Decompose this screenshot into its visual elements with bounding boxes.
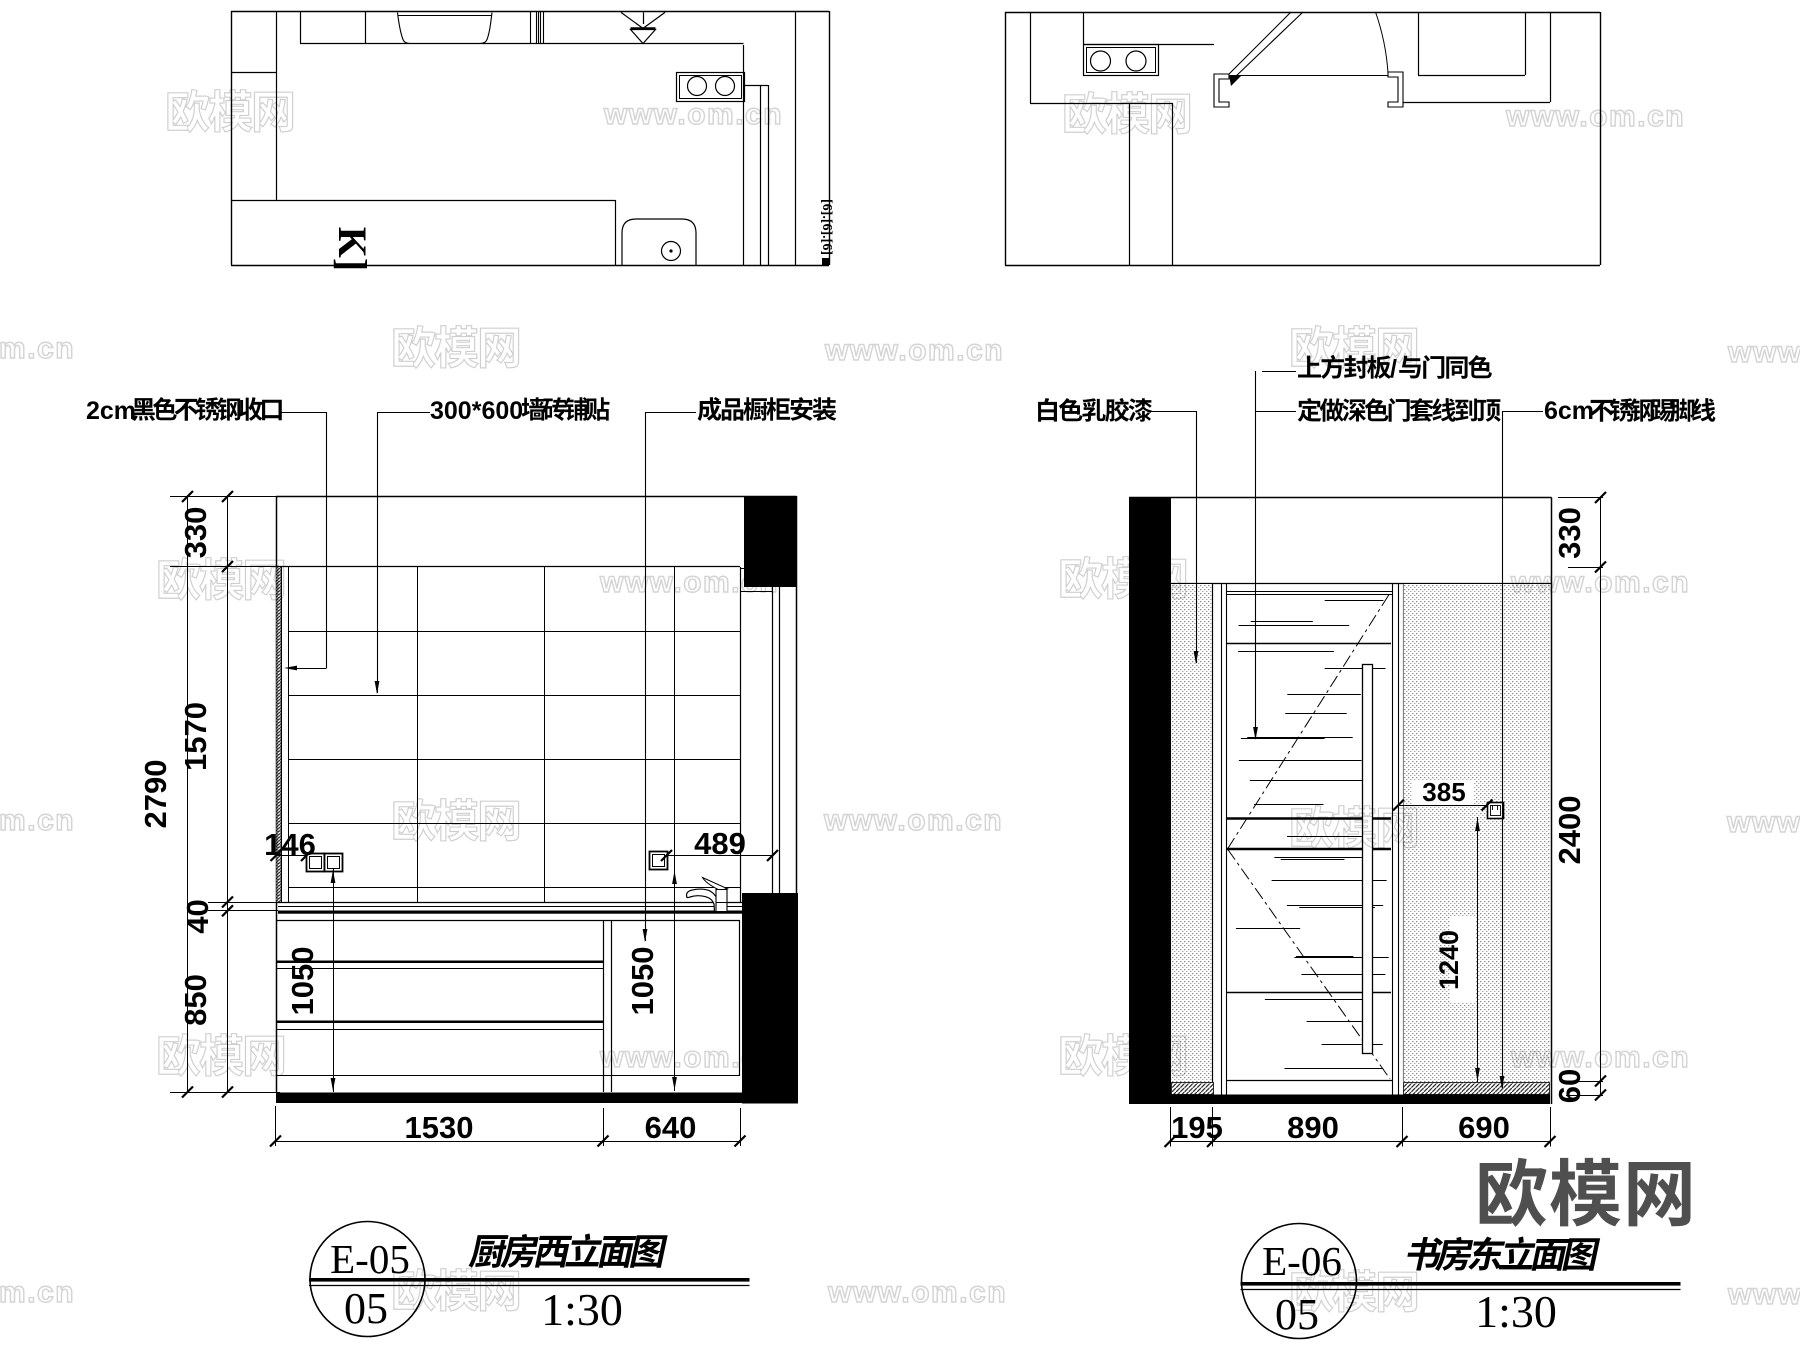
svg-text:www.om.cn: www.om.cn [0, 804, 75, 837]
svg-text:E-06: E-06 [1262, 1238, 1342, 1284]
svg-text:1050: 1050 [285, 947, 320, 1016]
svg-text:1530: 1530 [405, 1110, 474, 1145]
svg-text:1:30: 1:30 [1475, 1286, 1557, 1337]
svg-text:489: 489 [694, 826, 746, 861]
svg-text:www.om.cn: www.om.cn [603, 98, 783, 131]
svg-text:www.om.cn: www.om.cn [1505, 100, 1685, 133]
svg-text:www.om.cn: www.om.cn [599, 1041, 779, 1074]
svg-text:195: 195 [1171, 1110, 1223, 1145]
svg-text:2400: 2400 [1552, 796, 1587, 865]
svg-text:690: 690 [1458, 1110, 1510, 1145]
svg-text:6cm: 6cm [1544, 397, 1594, 425]
svg-text:www.om.cn: www.om.cn [0, 332, 75, 365]
svg-text:1240: 1240 [1434, 930, 1464, 990]
svg-text:www.om.cn: www.om.cn [1726, 806, 1800, 839]
svg-text:www.om.cn: www.om.cn [1727, 336, 1800, 369]
svg-text:640: 640 [645, 1110, 697, 1145]
svg-text:1570: 1570 [178, 702, 213, 771]
svg-text:www.om.cn: www.om.cn [823, 804, 1003, 837]
svg-text:www.om.cn: www.om.cn [827, 1276, 1007, 1309]
svg-text:05: 05 [344, 1284, 388, 1333]
svg-text:www.om.cn: www.om.cn [1510, 566, 1690, 599]
svg-text:850: 850 [178, 974, 213, 1026]
svg-text:E-05: E-05 [330, 1236, 410, 1282]
svg-text:2790: 2790 [138, 760, 173, 829]
svg-text:890: 890 [1287, 1110, 1339, 1145]
svg-text:www.om.cn: www.om.cn [0, 1276, 75, 1309]
svg-text:330: 330 [178, 507, 213, 559]
svg-text:www.om.cn: www.om.cn [1510, 1041, 1690, 1074]
svg-text:385: 385 [1422, 777, 1465, 807]
svg-text:www.om.cn: www.om.cn [1727, 1278, 1800, 1311]
svg-text:www.om.cn: www.om.cn [599, 566, 779, 599]
svg-text:40: 40 [180, 899, 215, 933]
svg-text:330: 330 [1552, 507, 1587, 559]
svg-text:2cm: 2cm [86, 397, 136, 425]
svg-text:146: 146 [264, 827, 316, 862]
svg-text:1050: 1050 [625, 947, 660, 1016]
svg-text:300*600: 300*600 [430, 397, 523, 425]
svg-text:[6].[6].[6]: [6].[6].[6] [819, 199, 834, 255]
svg-text:www.om.cn: www.om.cn [824, 334, 1004, 367]
svg-text:K]: K] [330, 227, 375, 271]
svg-text:1:30: 1:30 [541, 1284, 623, 1335]
